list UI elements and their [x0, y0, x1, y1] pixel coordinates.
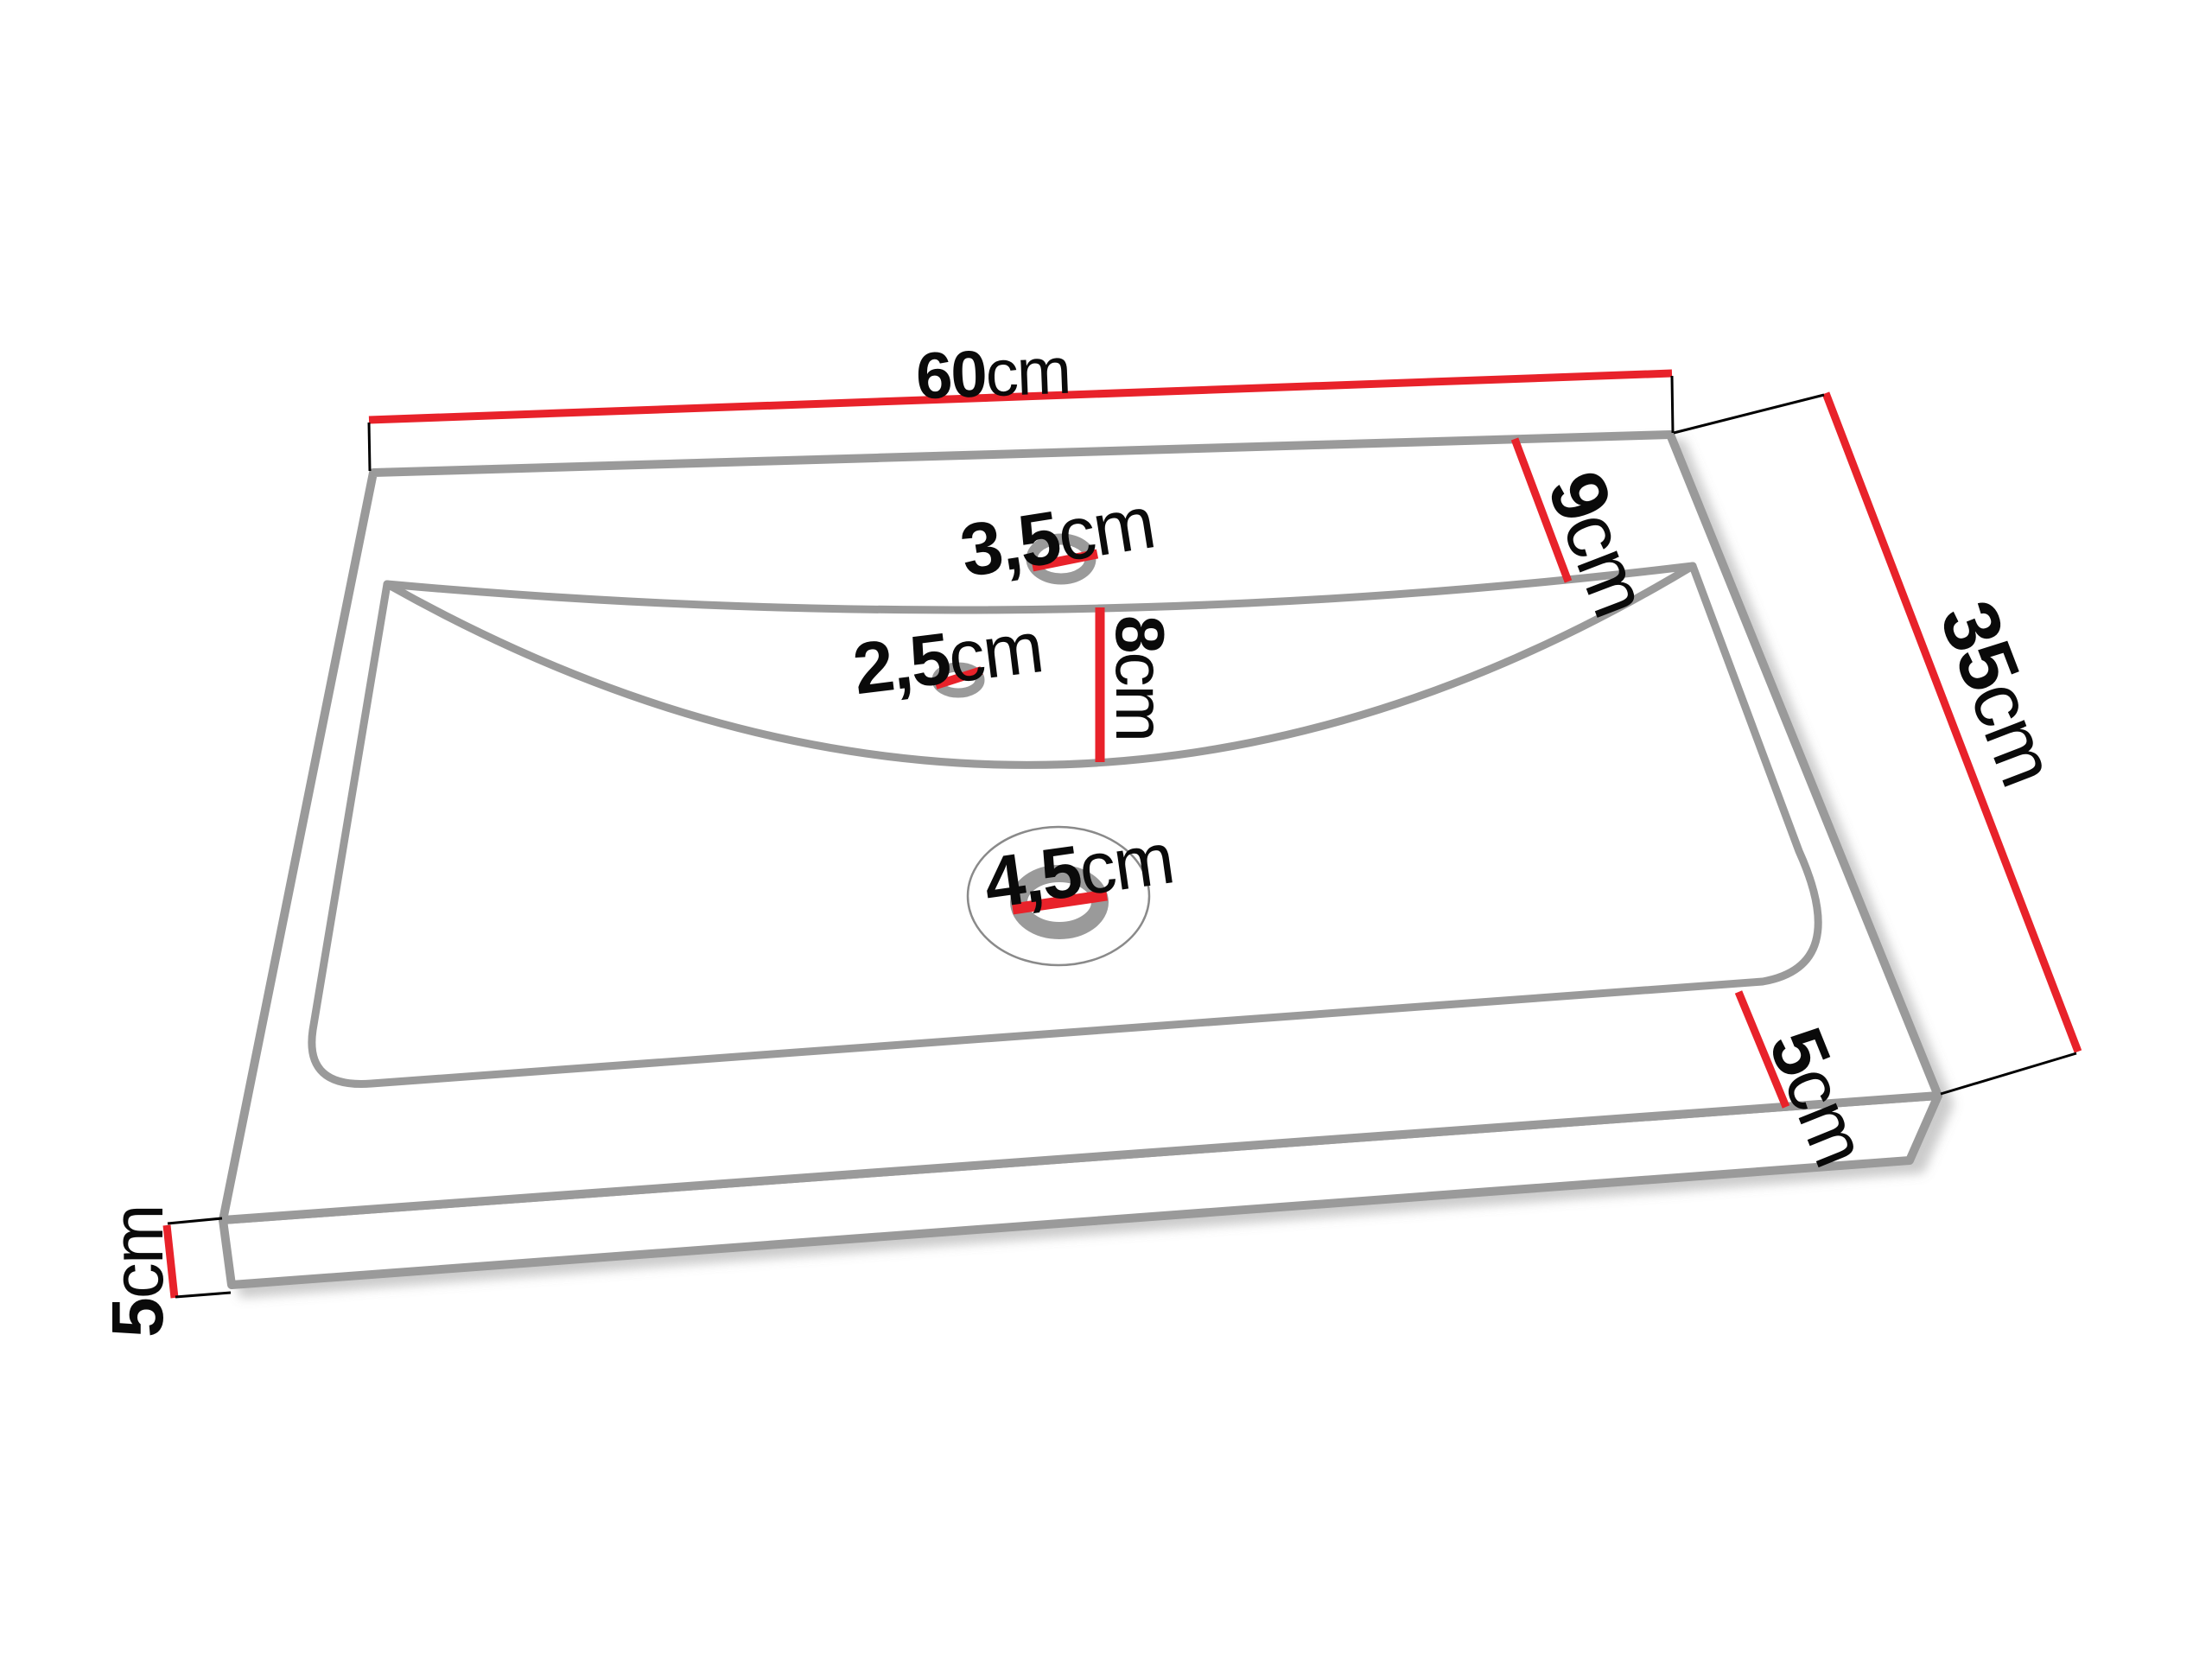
dim-extension-35cm-bottom: [1941, 1053, 2076, 1094]
washbasin-technical-diagram: 60cm 3,5cm 2,5cm 4,5cm 8cm 9cm 35cm 5cm …: [0, 0, 2212, 1659]
label-60cm: 60cm: [915, 334, 1071, 414]
dim-tick-5cm-left-bottom: [175, 1293, 231, 1297]
label-8cm: 8cm: [1102, 615, 1179, 741]
label-5cm-left: 5cm: [97, 1205, 178, 1338]
dim-tick-60cm-right: [1672, 376, 1673, 433]
dim-extension-35cm-top: [1674, 395, 1824, 433]
dim-tick-60cm-left: [369, 423, 370, 471]
label-35cm: 35cm: [1923, 590, 2072, 797]
diagram-page: 60cm 3,5cm 2,5cm 4,5cm 8cm 9cm 35cm 5cm …: [0, 0, 2212, 1659]
